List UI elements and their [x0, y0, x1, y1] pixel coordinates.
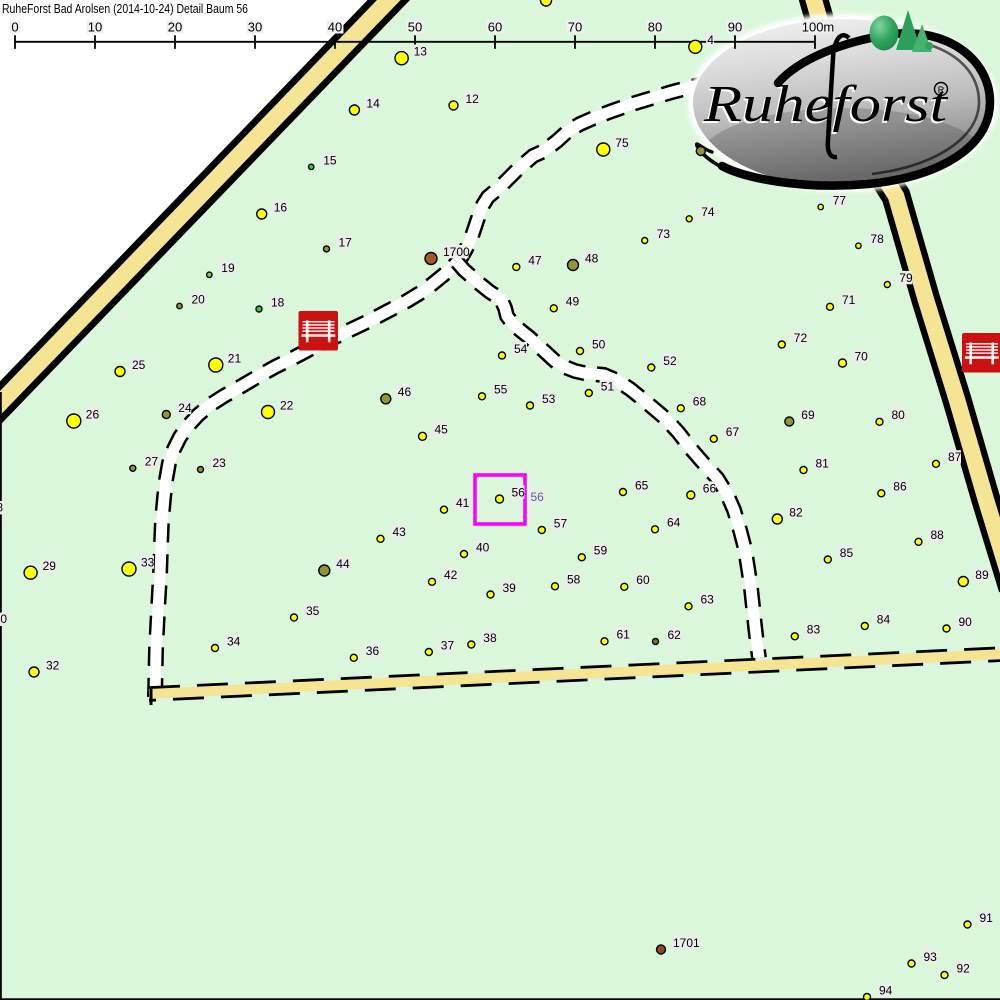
svg-text:93: 93 — [924, 950, 938, 964]
svg-text:79: 79 — [899, 271, 913, 285]
svg-text:48: 48 — [585, 251, 599, 265]
svg-text:60: 60 — [636, 573, 650, 587]
svg-text:50: 50 — [592, 337, 606, 351]
svg-text:81: 81 — [816, 456, 830, 470]
svg-text:35: 35 — [306, 604, 320, 618]
svg-text:80: 80 — [892, 408, 906, 422]
svg-text:4: 4 — [707, 33, 714, 47]
svg-text:1700: 1700 — [443, 245, 470, 259]
svg-text:67: 67 — [726, 425, 740, 439]
svg-text:23: 23 — [213, 456, 227, 470]
svg-text:65: 65 — [635, 478, 649, 492]
svg-text:29: 29 — [43, 559, 57, 573]
svg-text:68: 68 — [693, 395, 707, 409]
svg-text:30: 30 — [248, 20, 262, 35]
svg-text:45: 45 — [435, 423, 449, 437]
svg-text:89: 89 — [975, 568, 989, 582]
svg-text:15: 15 — [323, 153, 337, 167]
svg-text:53: 53 — [542, 392, 556, 406]
svg-text:90: 90 — [959, 615, 973, 629]
svg-text:90: 90 — [728, 20, 742, 35]
svg-text:R: R — [938, 85, 945, 95]
svg-text:86: 86 — [893, 480, 907, 494]
svg-text:36: 36 — [366, 644, 380, 658]
svg-text:61: 61 — [617, 628, 631, 642]
svg-text:64: 64 — [667, 516, 681, 530]
svg-text:50: 50 — [408, 20, 422, 35]
svg-text:73: 73 — [657, 227, 671, 241]
svg-text:100m: 100m — [802, 20, 835, 35]
svg-text:21: 21 — [228, 351, 242, 365]
svg-text:84: 84 — [877, 612, 891, 626]
svg-text:40: 40 — [476, 540, 490, 554]
svg-text:88: 88 — [931, 528, 945, 542]
svg-text:78: 78 — [870, 232, 884, 246]
svg-text:40: 40 — [328, 20, 342, 35]
svg-text:19: 19 — [221, 261, 235, 275]
svg-text:70: 70 — [855, 349, 869, 363]
svg-text:27: 27 — [145, 455, 159, 469]
svg-text:10: 10 — [88, 20, 102, 35]
svg-text:39: 39 — [503, 581, 517, 595]
svg-text:25: 25 — [132, 358, 146, 372]
svg-text:80: 80 — [648, 20, 662, 35]
svg-text:20: 20 — [168, 20, 182, 35]
svg-text:87: 87 — [948, 450, 962, 464]
svg-text:70: 70 — [568, 20, 582, 35]
svg-text:42: 42 — [444, 568, 458, 582]
svg-text:94: 94 — [879, 983, 893, 997]
svg-text:82: 82 — [789, 505, 803, 519]
svg-text:56: 56 — [531, 490, 545, 504]
svg-text:57: 57 — [554, 516, 568, 530]
svg-text:75: 75 — [615, 136, 629, 150]
svg-text:66: 66 — [703, 481, 717, 495]
svg-text:26: 26 — [86, 407, 100, 421]
svg-text:59: 59 — [594, 544, 608, 558]
svg-text:63: 63 — [701, 593, 715, 607]
svg-text:69: 69 — [801, 408, 815, 422]
svg-text:74: 74 — [701, 205, 715, 219]
svg-text:14: 14 — [366, 96, 380, 110]
svg-text:RuheForst Bad Arolsen (2014-10: RuheForst Bad Arolsen (2014-10-24) Detai… — [2, 1, 248, 16]
svg-text:33: 33 — [141, 555, 155, 569]
svg-text:47: 47 — [528, 253, 542, 267]
svg-text:85: 85 — [840, 546, 854, 560]
svg-text:43: 43 — [393, 525, 407, 539]
svg-text:32: 32 — [46, 658, 60, 672]
svg-text:12: 12 — [466, 92, 480, 106]
svg-text:38: 38 — [483, 631, 497, 645]
svg-text:30: 30 — [0, 612, 7, 626]
svg-text:41: 41 — [456, 496, 470, 510]
svg-text:71: 71 — [842, 293, 856, 307]
svg-text:22: 22 — [280, 398, 294, 412]
svg-text:56: 56 — [512, 485, 526, 499]
svg-text:0: 0 — [11, 20, 18, 35]
svg-text:28: 28 — [0, 501, 3, 515]
svg-text:52: 52 — [663, 354, 677, 368]
svg-text:1701: 1701 — [673, 936, 700, 950]
svg-text:92: 92 — [957, 961, 971, 975]
svg-text:Ruheforst: Ruheforst — [703, 76, 949, 133]
svg-text:16: 16 — [274, 200, 288, 214]
svg-text:77: 77 — [833, 193, 847, 207]
svg-text:51: 51 — [601, 379, 615, 393]
svg-text:18: 18 — [271, 295, 285, 309]
svg-text:44: 44 — [336, 557, 350, 571]
svg-text:91: 91 — [980, 911, 994, 925]
svg-text:24: 24 — [178, 401, 192, 415]
svg-text:17: 17 — [339, 235, 353, 249]
svg-text:46: 46 — [398, 385, 412, 399]
svg-text:83: 83 — [807, 623, 821, 637]
svg-text:37: 37 — [441, 638, 455, 652]
svg-text:13: 13 — [414, 45, 428, 59]
svg-text:54: 54 — [514, 342, 528, 356]
svg-text:58: 58 — [567, 573, 581, 587]
svg-text:49: 49 — [566, 295, 580, 309]
svg-text:62: 62 — [668, 628, 682, 642]
svg-text:34: 34 — [227, 634, 241, 648]
svg-text:55: 55 — [494, 383, 508, 397]
svg-text:60: 60 — [488, 20, 502, 35]
svg-text:72: 72 — [794, 331, 808, 345]
svg-text:20: 20 — [192, 292, 206, 306]
